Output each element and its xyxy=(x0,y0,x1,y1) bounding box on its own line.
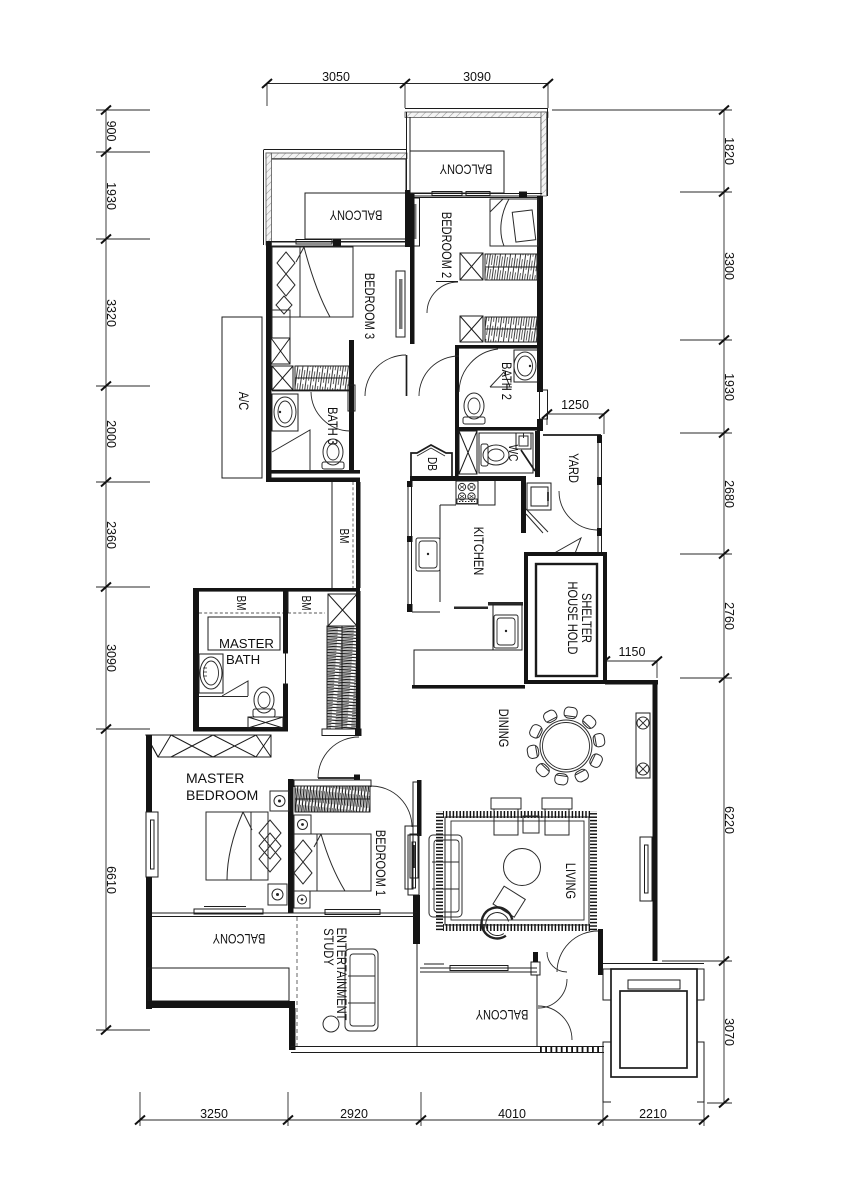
svg-text:2920: 2920 xyxy=(340,1107,368,1121)
svg-text:ENTERTAINMENT: ENTERTAINMENT xyxy=(334,928,349,1021)
svg-text:3050: 3050 xyxy=(322,70,350,84)
svg-text:3090: 3090 xyxy=(104,644,118,672)
svg-text:YARD: YARD xyxy=(566,453,581,483)
svg-text:DB: DB xyxy=(425,457,438,471)
svg-text:KITCHEN: KITCHEN xyxy=(471,527,486,575)
svg-text:1820: 1820 xyxy=(722,137,736,165)
svg-text:6610: 6610 xyxy=(104,866,118,894)
svg-text:1930: 1930 xyxy=(104,182,118,210)
svg-text:3090: 3090 xyxy=(463,70,491,84)
svg-text:900: 900 xyxy=(104,121,118,142)
svg-text:MASTER: MASTER xyxy=(219,636,274,651)
svg-text:HOUSE HOLD: HOUSE HOLD xyxy=(565,582,580,655)
svg-text:1930: 1930 xyxy=(722,373,736,401)
svg-text:WC: WC xyxy=(506,445,519,462)
svg-text:2360: 2360 xyxy=(104,521,118,549)
svg-text:SHELTER: SHELTER xyxy=(579,593,594,643)
svg-text:BATH: BATH xyxy=(226,652,260,667)
svg-text:3250: 3250 xyxy=(200,1107,228,1121)
svg-text:BALCONY: BALCONY xyxy=(475,1007,528,1022)
svg-text:1150: 1150 xyxy=(619,645,646,659)
svg-text:LIVING: LIVING xyxy=(563,863,578,899)
svg-text:6220: 6220 xyxy=(722,806,736,834)
svg-text:BEDROOM 2: BEDROOM 2 xyxy=(439,212,454,278)
svg-text:BALCONY: BALCONY xyxy=(212,931,265,946)
svg-text:2210: 2210 xyxy=(639,1107,667,1121)
svg-text:BM: BM xyxy=(337,528,350,543)
svg-text:BATH 3: BATH 3 xyxy=(325,407,340,445)
svg-text:3300: 3300 xyxy=(722,252,736,280)
svg-text:MASTER: MASTER xyxy=(186,770,244,786)
svg-text:3320: 3320 xyxy=(104,299,118,327)
svg-text:2760: 2760 xyxy=(722,602,736,630)
svg-text:BALCONY: BALCONY xyxy=(439,161,492,176)
svg-text:BEDROOM: BEDROOM xyxy=(186,787,258,803)
svg-text:BEDROOM 3: BEDROOM 3 xyxy=(362,273,377,339)
svg-text:BM: BM xyxy=(299,595,312,610)
svg-text:BEDROOM 1: BEDROOM 1 xyxy=(373,830,388,896)
svg-text:1250: 1250 xyxy=(561,398,589,412)
svg-text:A/C: A/C xyxy=(236,392,251,410)
svg-text:BATH 2: BATH 2 xyxy=(499,362,514,400)
svg-text:BM: BM xyxy=(234,595,247,610)
svg-text:3070: 3070 xyxy=(722,1018,736,1046)
svg-text:2680: 2680 xyxy=(722,480,736,508)
svg-text:BALCONY: BALCONY xyxy=(329,207,382,222)
svg-text:DINING: DINING xyxy=(496,709,511,748)
svg-text:2000: 2000 xyxy=(104,420,118,448)
svg-text:4010: 4010 xyxy=(498,1107,526,1121)
